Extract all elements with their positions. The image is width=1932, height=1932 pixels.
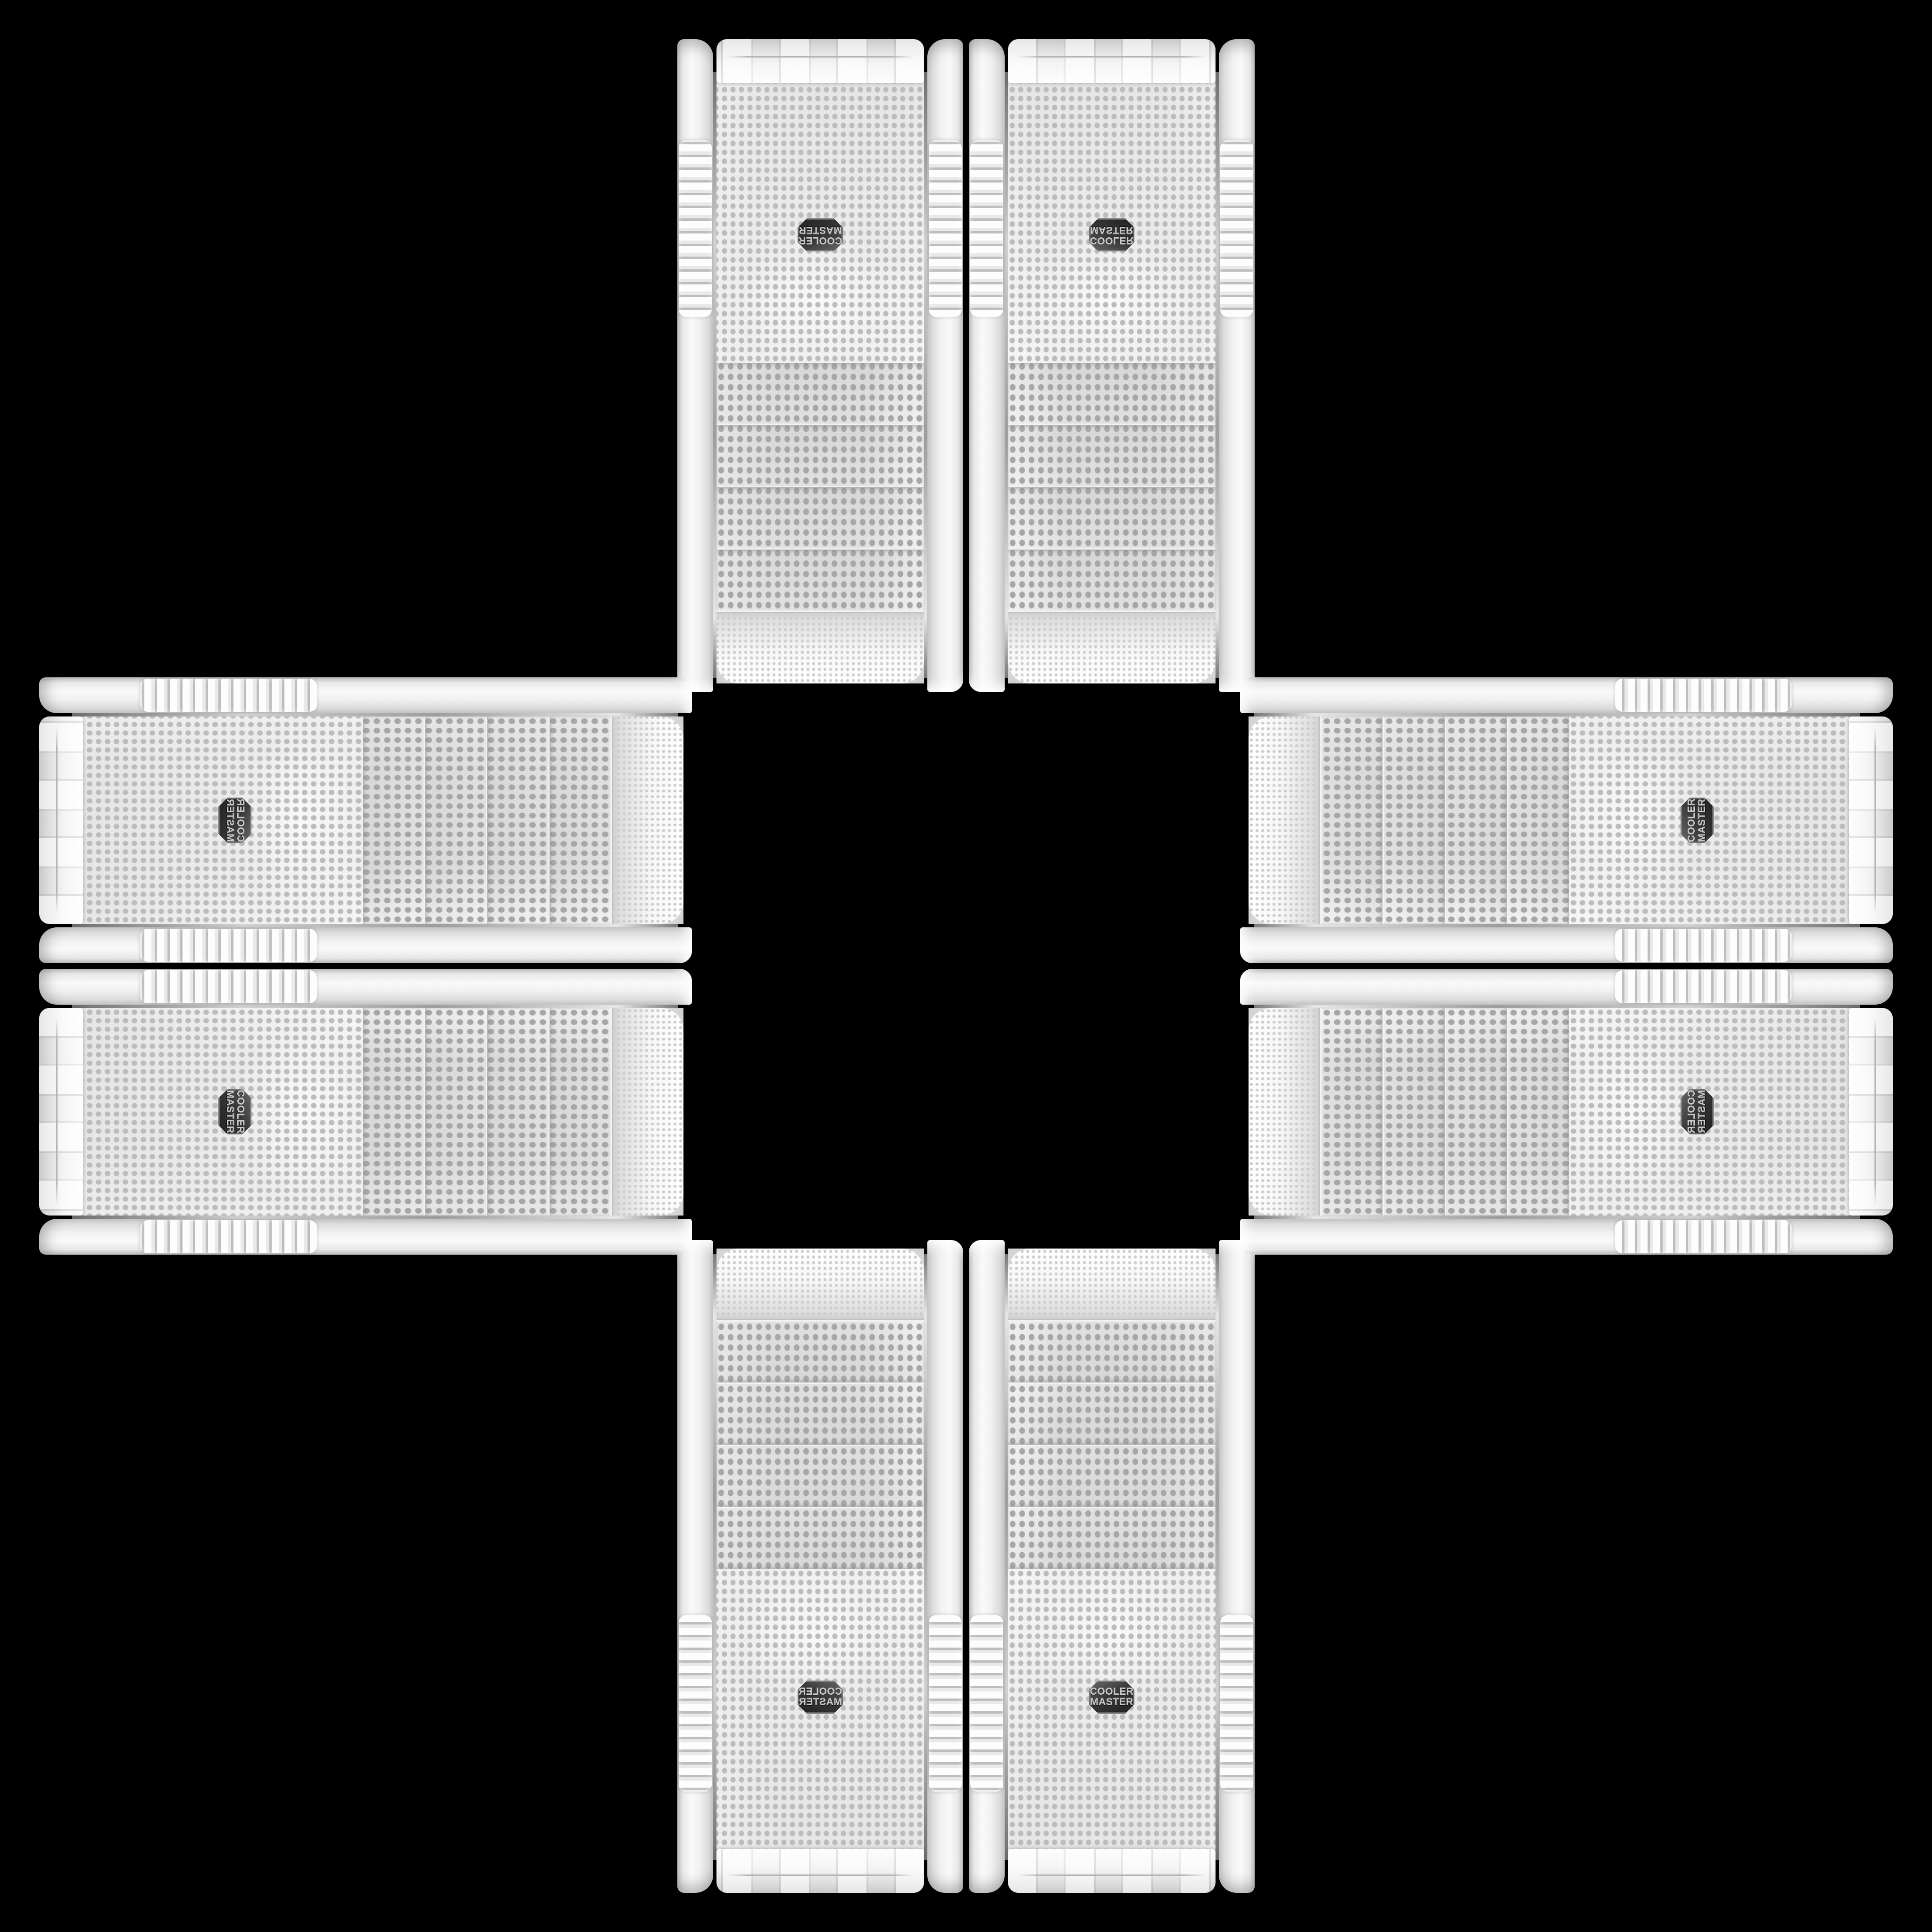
intake-mesh-panel: COOLER MASTER [81,716,363,924]
case-rail-left [39,927,692,963]
bezel-facets [716,1849,924,1893]
quadrant-bottom-right: COOLER MASTER [966,966,1932,1932]
drive-bay-covers [1008,1320,1216,1569]
mesh-dome-cap [1008,612,1216,683]
drive-bay-cover [1008,1382,1216,1445]
front-mesh: COOLER MASTER [81,716,683,924]
cooler-master-badge: COOLER MASTER [1681,798,1714,843]
chrome-trim-left [924,1254,927,1860]
quadrant-bottom-left: COOLER MASTER [0,966,966,1932]
case-rail-left [969,39,1005,692]
bezel-facets [39,716,83,924]
bottom-bezel [39,1008,83,1216]
badge-text-line2: MASTER [1090,225,1133,235]
case-rail-left [39,969,692,1005]
chrome-trim-left [924,72,927,678]
bezel-facets [1849,716,1893,924]
bezel-seam [56,727,58,914]
chrome-trim-left [1254,1005,1860,1008]
drive-bay-cover [363,1008,425,1216]
bottom-bezel [716,1849,924,1893]
chrome-trim-right [1216,1254,1219,1860]
intake-mesh-panel: COOLER MASTER [1008,1569,1216,1851]
intake-mesh-panel: COOLER MASTER [1569,1008,1851,1216]
cooler-master-badge: COOLER MASTER [1089,218,1134,251]
badge-text-line2: MASTER [1090,1697,1133,1707]
drive-bay-cover [716,363,924,425]
grip-ribs [140,970,317,1003]
chrome-trim-right [72,713,678,716]
badge-text-line1: COOLER [799,235,842,245]
mesh-dome-cap [612,716,683,924]
bezel-facets [716,39,924,83]
bezel-facets [39,1008,83,1216]
drive-bay-cover [1008,550,1216,612]
chrome-trim-right [1254,1216,1860,1219]
badge-text-line1: COOLER [1090,1687,1134,1697]
bezel-seam [56,1018,58,1205]
drive-bay-cover [1008,363,1216,425]
grip-ribs [1220,1615,1253,1792]
case-rail-right [39,1219,692,1255]
badge-text-line2: MASTER [225,799,235,842]
front-mesh: COOLER MASTER [1008,81,1216,683]
bezel-seam [1874,727,1876,914]
mesh-dome-cap [716,612,924,683]
cooler-master-badge: COOLER MASTER [218,1089,251,1134]
drive-bay-cover [487,716,550,924]
grip-ribs [929,1615,962,1792]
mesh-dome-cap [716,1249,924,1320]
intake-mesh-panel: COOLER MASTER [716,81,924,363]
mesh-dome-cap [612,1008,683,1216]
case-collage: COOLER MASTER [0,0,1932,1932]
drive-bay-cover [1008,1320,1216,1382]
drive-bay-cover [716,487,924,550]
case-rail-right [39,677,692,713]
grip-ribs [1615,929,1792,962]
mesh-dome-cap [1249,716,1320,924]
case-rail-right [1219,39,1255,692]
intake-mesh-panel: COOLER MASTER [1569,716,1851,924]
chrome-trim-left [1005,1254,1008,1860]
bottom-bezel [1008,39,1216,83]
drive-bay-cover [550,1008,612,1216]
badge-text-line1: COOLER [1687,799,1697,842]
drive-bay-cover [1008,1507,1216,1569]
drive-bay-covers [716,1320,924,1569]
badge-text-line2: MASTER [799,1697,842,1707]
cooler-master-badge: COOLER MASTER [798,218,843,251]
drive-bay-cover [716,1445,924,1507]
intake-mesh-panel: COOLER MASTER [716,1569,924,1851]
chrome-trim-left [72,1005,678,1008]
bezel-seam [1874,1018,1876,1205]
chrome-trim-right [713,1254,716,1860]
chrome-trim-right [1254,713,1860,716]
cooler-master-badge: COOLER MASTER [798,1681,843,1714]
drive-bay-cover [1008,1445,1216,1507]
case-rail-left [969,1240,1005,1893]
bezel-facets [1008,1849,1216,1893]
mesh-dome-cap [1249,1008,1320,1216]
drive-bay-cover [1382,716,1445,924]
front-mesh: COOLER MASTER [1008,1249,1216,1851]
case-rail-left [927,1240,963,1893]
grip-ribs [929,140,962,317]
drive-bay-cover [363,716,425,924]
cooler-master-badge: COOLER MASTER [1089,1681,1134,1714]
drive-bay-cover [1507,716,1569,924]
drive-bay-cover [1320,716,1382,924]
drive-bay-cover [425,1008,487,1216]
drive-bay-cover [1445,1008,1507,1216]
drive-bay-cover [716,550,924,612]
pc-case-horizontal: COOLER MASTER [38,969,694,1255]
drive-bay-covers [1320,716,1569,924]
mesh-dome-cap [1008,1249,1216,1320]
bottom-bezel [1008,1849,1216,1893]
drive-bay-covers [363,716,612,924]
bezel-seam [727,56,914,58]
drive-bay-cover [1382,1008,1445,1216]
pc-case-horizontal: COOLER MASTER [1238,969,1894,1255]
grip-ribs [140,679,317,712]
front-mesh: COOLER MASTER [81,1008,683,1216]
quadrant-top-right: COOLER MASTER [966,0,1932,966]
drive-bay-cover [550,716,612,924]
drive-bay-covers [716,363,924,612]
cooler-master-badge: COOLER MASTER [1681,1089,1714,1134]
case-rail-left [927,39,963,692]
pc-case-vertical: COOLER MASTER [677,1238,963,1894]
chrome-trim-left [1254,924,1860,927]
bezel-seam [1018,1874,1205,1876]
intake-mesh-panel: COOLER MASTER [1008,81,1216,363]
badge-text-line2: MASTER [799,225,842,235]
badge-text-line1: COOLER [1687,1090,1697,1134]
chrome-trim-right [72,1216,678,1219]
pc-case-vertical: COOLER MASTER [677,38,963,694]
bezel-facets [1849,1008,1893,1216]
badge-text-line2: MASTER [1697,799,1707,842]
pc-case-horizontal: COOLER MASTER [1238,677,1894,963]
front-mesh: COOLER MASTER [1249,1008,1851,1216]
drive-bay-cover [425,716,487,924]
bezel-facets [1008,39,1216,83]
chrome-trim-left [1005,72,1008,678]
case-rail-left [1240,927,1893,963]
case-rail-right [1219,1240,1255,1893]
bezel-seam [727,1874,914,1876]
grip-ribs [1615,1220,1792,1253]
grip-ribs [1220,140,1253,317]
grip-ribs [970,140,1003,317]
front-mesh: COOLER MASTER [716,81,924,683]
case-rail-right [1240,1219,1893,1255]
drive-bay-covers [1008,363,1216,612]
grip-ribs [679,140,712,317]
badge-text-line1: COOLER [1090,235,1134,245]
front-mesh: COOLER MASTER [1249,716,1851,924]
grip-ribs [1615,679,1792,712]
drive-bay-covers [1320,1008,1569,1216]
drive-bay-cover [1507,1008,1569,1216]
pc-case-vertical: COOLER MASTER [969,1238,1255,1894]
drive-bay-covers [363,1008,612,1216]
bottom-bezel [716,39,924,83]
drive-bay-cover [1008,487,1216,550]
chrome-trim-right [1216,72,1219,678]
chrome-trim-left [72,924,678,927]
grip-ribs [970,1615,1003,1792]
drive-bay-cover [1445,716,1507,924]
drive-bay-cover [716,1382,924,1445]
bezel-seam [1018,56,1205,58]
cooler-master-badge: COOLER MASTER [218,798,251,843]
drive-bay-cover [1008,425,1216,487]
case-rail-right [677,1240,713,1893]
badge-text-line2: MASTER [1697,1090,1707,1133]
grip-ribs [679,1615,712,1792]
front-mesh: COOLER MASTER [716,1249,924,1851]
badge-text-line1: COOLER [235,799,245,842]
case-rail-right [1240,677,1893,713]
pc-case-horizontal: COOLER MASTER [38,677,694,963]
badge-text-line2: MASTER [225,1090,235,1133]
grip-ribs [140,929,317,962]
badge-text-line1: COOLER [235,1090,245,1134]
intake-mesh-panel: COOLER MASTER [81,1008,363,1216]
badge-text-line1: COOLER [799,1687,842,1697]
chrome-trim-right [713,72,716,678]
bottom-bezel [39,716,83,924]
grip-ribs [140,1220,317,1253]
pc-case-vertical: COOLER MASTER [969,38,1255,694]
case-rail-left [1240,969,1893,1005]
bottom-bezel [1849,1008,1893,1216]
drive-bay-cover [716,1320,924,1382]
drive-bay-cover [487,1008,550,1216]
bottom-bezel [1849,716,1893,924]
case-rail-right [677,39,713,692]
drive-bay-cover [716,1507,924,1569]
drive-bay-cover [1320,1008,1382,1216]
grip-ribs [1615,970,1792,1003]
quadrant-top-left: COOLER MASTER [0,0,966,966]
drive-bay-cover [716,425,924,487]
